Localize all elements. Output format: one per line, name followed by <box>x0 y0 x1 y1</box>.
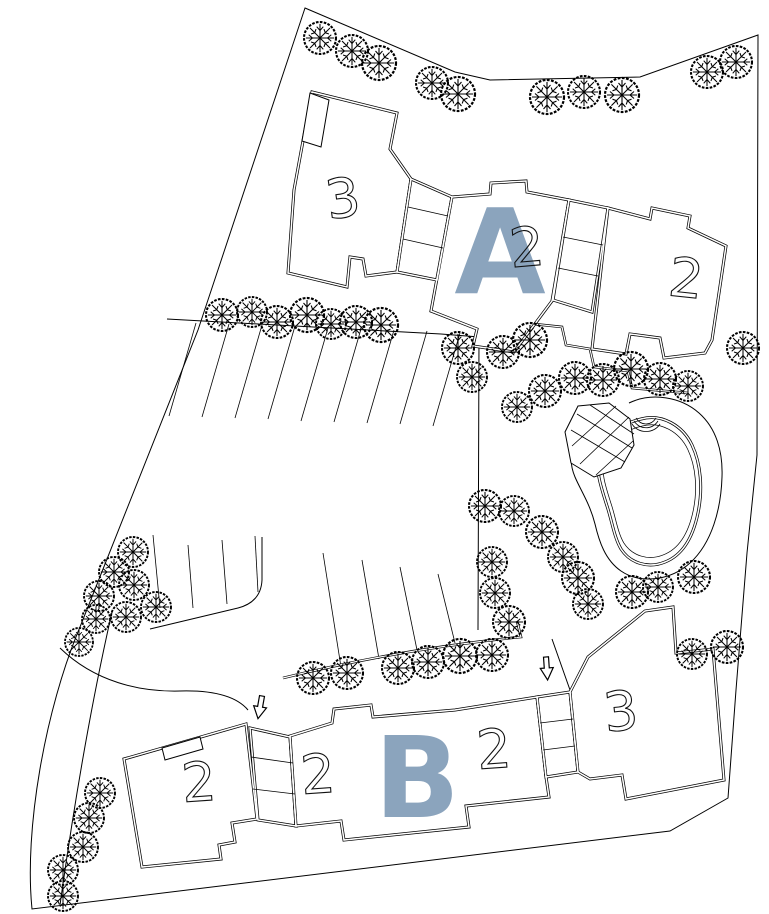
parking-stall-line <box>268 326 295 419</box>
tree-symbol-icon <box>118 537 148 567</box>
tree-symbol-icon <box>336 35 368 67</box>
entry-arrow-icon <box>252 695 269 720</box>
tree-symbol-icon <box>673 371 703 401</box>
parking-stall-line <box>255 536 258 592</box>
tree-symbol-icon <box>529 375 561 407</box>
unit-label-b2-left: 2 <box>179 750 218 815</box>
site-plan-canvas: A B 3 2 2 2 2 2 3 <box>0 0 769 914</box>
upper-parking-stalls <box>169 323 460 426</box>
tree-symbol-icon <box>493 606 525 638</box>
building-a-unit2-right-outline <box>592 208 726 358</box>
tree-symbol-icon <box>65 628 93 656</box>
tree-symbol-icon <box>297 662 329 694</box>
tree-symbol-icon <box>331 657 363 689</box>
parking-stall-line <box>301 328 328 421</box>
tree-symbol-icon <box>502 392 532 422</box>
yard-wall <box>552 639 570 690</box>
tree-symbol-icon <box>568 76 600 108</box>
tree-symbol-icon <box>691 56 723 88</box>
tree-symbol-icon <box>84 581 114 611</box>
tree-symbol-icon <box>677 639 707 669</box>
parking-stall-line <box>438 574 455 643</box>
tree-symbol-icon <box>443 639 477 673</box>
tree-symbol-icon <box>111 602 141 632</box>
lower-right-parking-stalls <box>323 553 455 667</box>
parking-stall-line <box>400 331 427 424</box>
unit-label-a2-mid: 2 <box>507 215 547 281</box>
tree-symbol-icon <box>141 592 171 622</box>
tree-symbol-icon <box>587 364 619 396</box>
tree-symbol-icon <box>74 803 104 833</box>
tree-symbol-icon <box>48 855 78 885</box>
tree-symbol-icon <box>643 572 673 602</box>
parking-lane-edge-lower <box>150 537 262 629</box>
pool-area <box>565 397 722 579</box>
tree-symbol-icon <box>477 547 507 577</box>
site-plan-drawing: A B 3 2 2 2 2 2 3 <box>0 0 769 914</box>
parking-stall-line <box>188 545 193 608</box>
tree-symbol-icon <box>530 80 564 114</box>
tree-symbol-icon <box>711 631 743 663</box>
tree-symbol-icon <box>526 516 558 548</box>
tree-symbol-icon <box>605 78 639 112</box>
parking-stall-line <box>433 333 460 426</box>
parking-stall-line <box>169 323 196 416</box>
parking-stall-line <box>323 553 341 667</box>
unit-label-b3: 3 <box>600 678 641 744</box>
tree-symbol-icon <box>237 297 267 327</box>
tree-symbol-icon <box>364 308 398 342</box>
tree-symbol-icon <box>316 309 346 339</box>
tree-symbol-icon <box>441 77 475 111</box>
tree-symbol-icon <box>82 605 110 633</box>
cluster-b-label: B <box>374 714 459 844</box>
parking-stall-line <box>400 567 417 650</box>
tree-symbol-icon <box>442 332 474 364</box>
tree-symbol-icon <box>304 22 336 54</box>
tree-symbol-icon <box>206 299 238 331</box>
tree-symbol-icon <box>480 578 510 608</box>
tree-symbol-icon <box>469 490 501 522</box>
parking-stall-line <box>362 560 379 659</box>
lower-left-parking-stalls <box>153 535 258 608</box>
driveway-arc <box>60 648 248 710</box>
parking-stall-line <box>235 325 262 418</box>
tree-symbol-icon <box>48 881 78 911</box>
unit-label-b2-midleft: 2 <box>298 742 337 807</box>
tree-symbol-icon <box>614 352 648 386</box>
parking-stall-line <box>202 324 229 417</box>
tree-symbol-icon <box>548 542 578 572</box>
entry-arrow-icon <box>540 657 555 681</box>
tree-symbol-icon <box>457 362 487 392</box>
tree-symbol-icon <box>499 496 529 526</box>
tree-symbol-icon <box>644 363 676 395</box>
unit-label-b2-midright: 2 <box>474 717 513 782</box>
tree-symbol-icon <box>261 306 293 338</box>
parking-stall-line <box>222 540 227 604</box>
tree-symbol-icon <box>720 46 752 78</box>
parking-stall-line <box>367 330 394 423</box>
building-b-unit3-outline <box>570 607 724 799</box>
unit-label-a2-right: 2 <box>666 245 707 311</box>
tree-symbol-icon <box>727 332 759 364</box>
tree-symbol-icon <box>476 639 508 671</box>
parking-stall-line <box>334 329 361 422</box>
tree-symbol-icon <box>678 561 710 593</box>
